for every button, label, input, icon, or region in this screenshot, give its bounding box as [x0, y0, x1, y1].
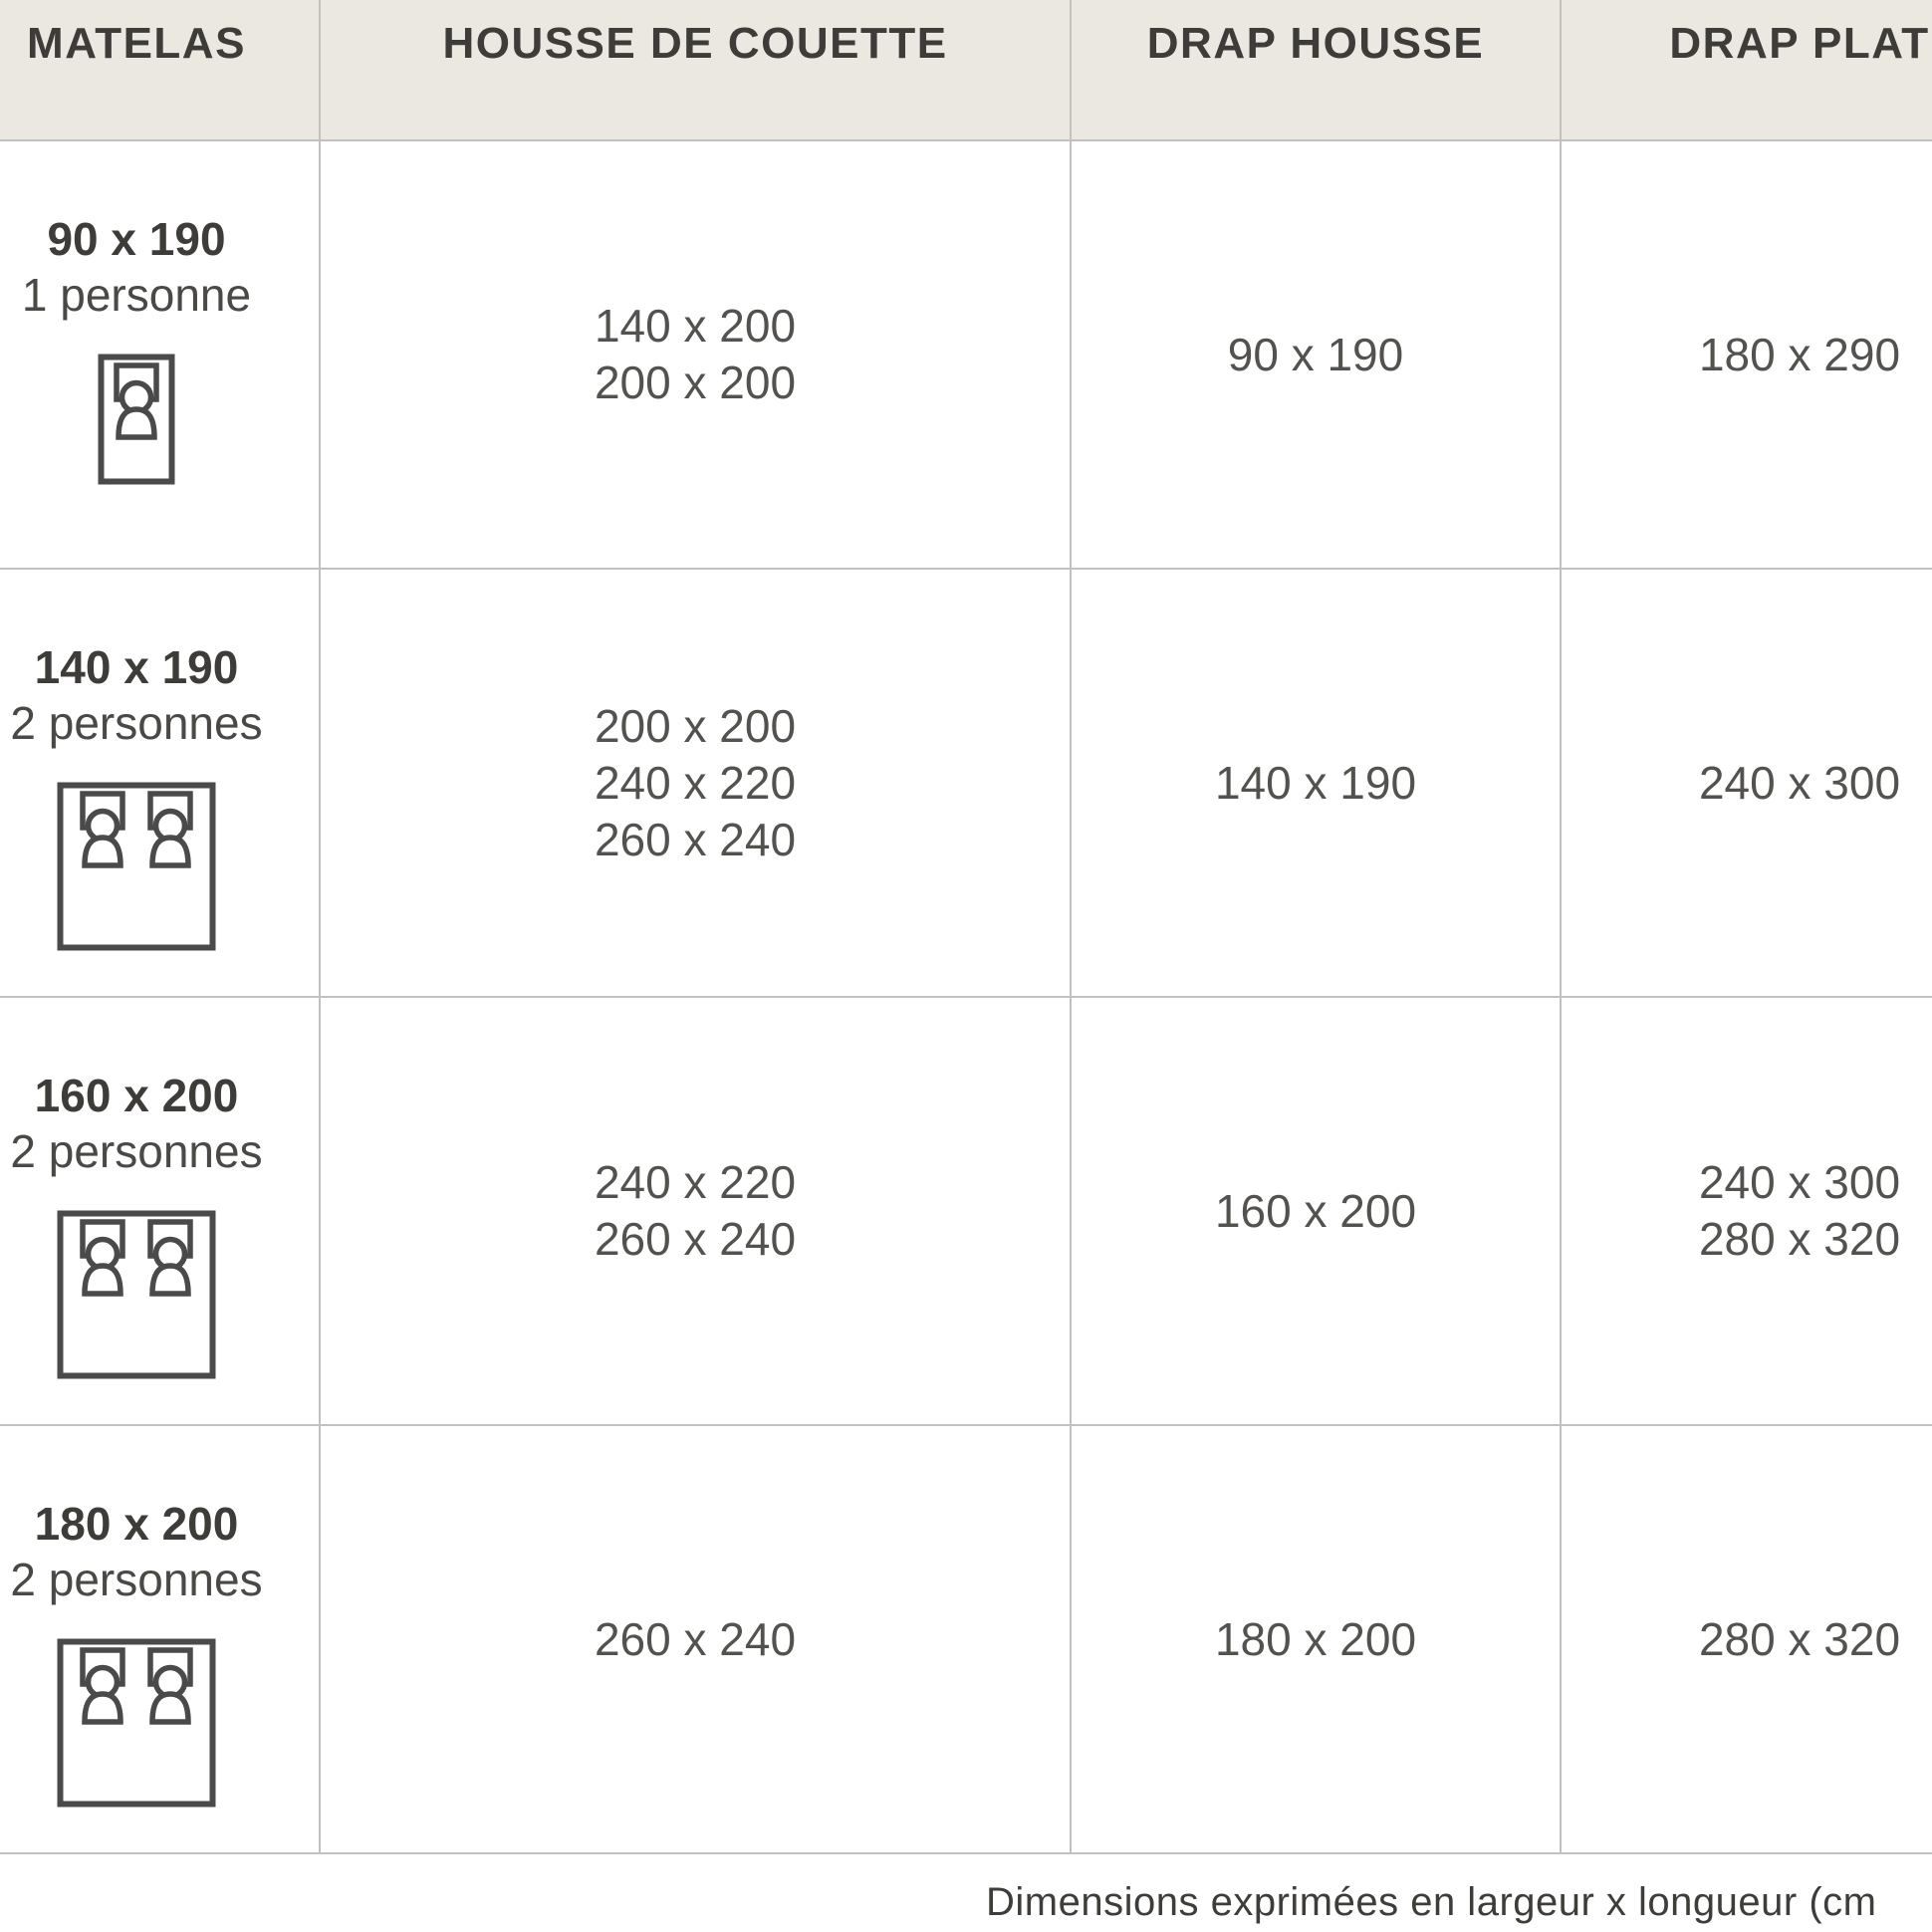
housse-de-couette-cell: 140 x 200 200 x 200 — [321, 141, 1072, 568]
bedding-size-table: MATELAS HOUSSE DE COUETTE DRAP HOUSSE DR… — [0, 0, 1932, 1854]
column-header-drap-plat: DRAP PLAT — [1562, 0, 1932, 139]
matelas-cell: 90 x 190 1 personne — [0, 141, 321, 568]
size-value: 260 x 240 — [595, 1611, 796, 1668]
table-row: 180 x 200 2 personnes 260 x 240 180 x 20… — [0, 1426, 1932, 1854]
drap-plat-cell: 240 x 300 — [1562, 570, 1932, 996]
size-value: 200 x 200 — [595, 355, 796, 411]
dimensions-note: Dimensions exprimées en largeur x longue… — [986, 1880, 1876, 1925]
size-value: 240 x 300 — [1699, 755, 1900, 812]
capacity-label: 2 personnes — [10, 1555, 262, 1604]
size-value: 90 x 190 — [1228, 327, 1403, 383]
drap-plat-cell: 180 x 290 — [1562, 141, 1932, 568]
size-value: 240 x 220 — [595, 1154, 796, 1211]
drap-housse-cell: 90 x 190 — [1072, 141, 1562, 568]
size-value: 180 x 200 — [1215, 1611, 1416, 1668]
size-value: 160 x 200 — [1215, 1183, 1416, 1240]
capacity-label: 1 personne — [22, 270, 251, 320]
capacity-label: 2 personnes — [10, 1126, 262, 1176]
double-bed-icon — [57, 1638, 216, 1808]
drap-plat-cell: 240 x 300 280 x 320 — [1562, 998, 1932, 1424]
size-value: 240 x 300 — [1699, 1154, 1900, 1211]
column-header-matelas: MATELAS — [0, 0, 321, 139]
double-bed-icon — [57, 782, 216, 951]
table-row: 160 x 200 2 personnes 240 x 220 260 x 24… — [0, 998, 1932, 1426]
drap-plat-cell: 280 x 320 — [1562, 1426, 1932, 1852]
size-value: 280 x 320 — [1699, 1611, 1900, 1668]
matelas-cell: 140 x 190 2 personnes — [0, 570, 321, 996]
table-row: 140 x 190 2 personnes 200 x 200 240 x 22… — [0, 570, 1932, 998]
size-value: 200 x 200 — [595, 698, 796, 755]
drap-housse-cell: 180 x 200 — [1072, 1426, 1562, 1852]
capacity-label: 2 personnes — [10, 698, 262, 748]
mattress-size: 180 x 200 — [35, 1499, 239, 1549]
matelas-cell: 160 x 200 2 personnes — [0, 998, 321, 1424]
column-header-housse-de-couette: HOUSSE DE COUETTE — [321, 0, 1072, 139]
double-bed-icon — [57, 1210, 216, 1379]
size-value: 240 x 220 — [595, 755, 796, 812]
single-bed-icon — [98, 354, 175, 485]
bedding-size-guide: MATELAS HOUSSE DE COUETTE DRAP HOUSSE DR… — [0, 0, 1932, 1932]
housse-de-couette-cell: 240 x 220 260 x 240 — [321, 998, 1072, 1424]
housse-de-couette-cell: 260 x 240 — [321, 1426, 1072, 1852]
size-value: 280 x 320 — [1699, 1211, 1900, 1268]
mattress-size: 90 x 190 — [47, 214, 225, 264]
mattress-size: 140 x 190 — [35, 642, 239, 692]
size-value: 260 x 240 — [595, 1211, 796, 1268]
drap-housse-cell: 140 x 190 — [1072, 570, 1562, 996]
housse-de-couette-cell: 200 x 200 240 x 220 260 x 240 — [321, 570, 1072, 996]
size-value: 140 x 190 — [1215, 755, 1416, 812]
matelas-cell: 180 x 200 2 personnes — [0, 1426, 321, 1852]
table-header-row: MATELAS HOUSSE DE COUETTE DRAP HOUSSE DR… — [0, 0, 1932, 141]
column-header-drap-housse: DRAP HOUSSE — [1072, 0, 1562, 139]
drap-housse-cell: 160 x 200 — [1072, 998, 1562, 1424]
mattress-size: 160 x 200 — [35, 1071, 239, 1120]
size-value: 260 x 240 — [595, 812, 796, 868]
size-value: 180 x 290 — [1699, 327, 1900, 383]
table-row: 90 x 190 1 personne 140 x 200 200 x 200 … — [0, 141, 1932, 570]
size-value: 140 x 200 — [595, 298, 796, 355]
